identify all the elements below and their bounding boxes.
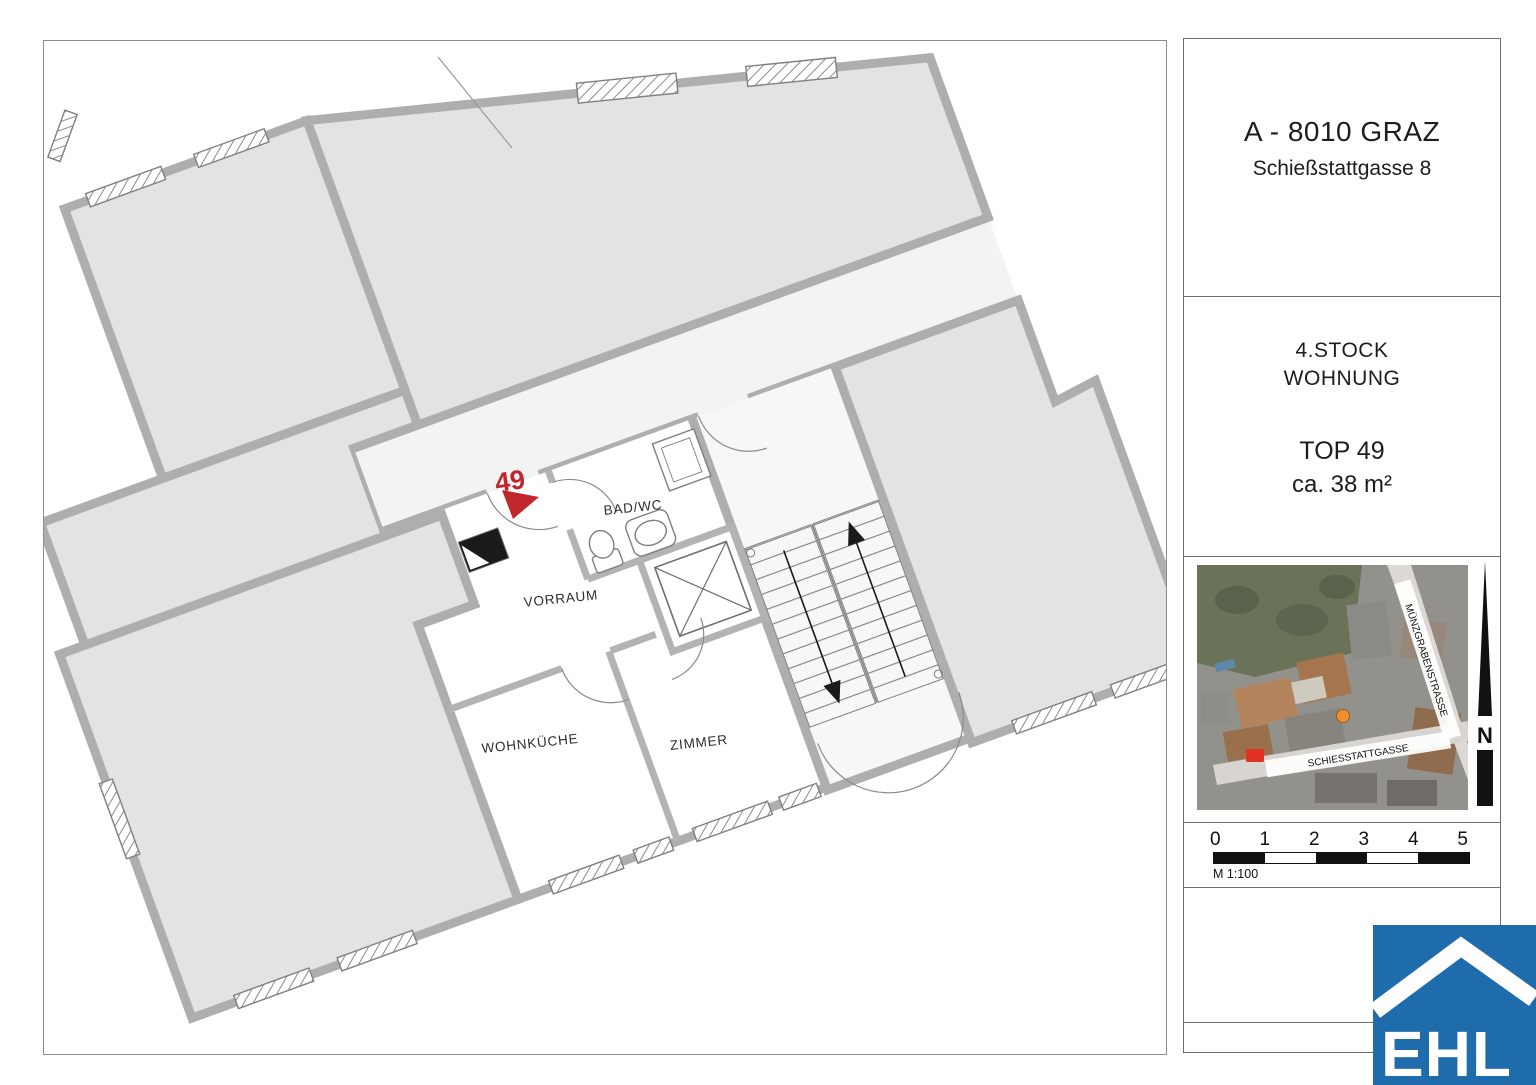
floor-line2: WOHNUNG: [1184, 367, 1500, 391]
scale-tick: 3: [1358, 829, 1369, 851]
scale-tick: 5: [1457, 829, 1468, 851]
ehl-logo: EHL: [1373, 925, 1536, 1085]
scale-note: M 1:100: [1213, 867, 1258, 881]
scale-tick: 1: [1259, 829, 1270, 851]
map-panel: MÜNZGRABENSTRASSE SCHIESSTATTGASSE N: [1184, 557, 1500, 823]
scale-panel: 0 1 2 3 4 5 M 1:100: [1184, 823, 1500, 888]
north-needle-icon: [1478, 561, 1492, 716]
address-panel: A - 8010 GRAZ Schießstattgasse 8: [1184, 39, 1500, 297]
wall-stub: [48, 110, 77, 161]
floorplan-frame: 49 BAD/WC VORRAUM WOHNKÜCHE ZIMMER: [43, 40, 1167, 1055]
floorplan-drawing: 49 BAD/WC VORRAUM WOHNKÜCHE ZIMMER: [44, 41, 1167, 1055]
north-base-icon: [1477, 750, 1493, 806]
logo-text: EHL: [1381, 1018, 1512, 1085]
area-text: ca. 38 m²: [1184, 471, 1500, 499]
scale-tick: 4: [1408, 829, 1419, 851]
scale-tick: 0: [1210, 829, 1221, 851]
scale-tick: 2: [1309, 829, 1320, 851]
map-marker-orange-icon: [1337, 710, 1350, 723]
address-street: Schießstattgasse 8: [1184, 157, 1500, 181]
scale-bar: [1213, 852, 1470, 864]
map-marker-red-icon: [1246, 749, 1264, 762]
top-number: TOP 49: [1184, 437, 1500, 466]
info-column: A - 8010 GRAZ Schießstattgasse 8 4.STOCK…: [1183, 38, 1501, 1053]
scale-ticks: 0 1 2 3 4 5: [1210, 829, 1468, 851]
unit-info-panel: 4.STOCK WOHNUNG TOP 49 ca. 38 m²: [1184, 297, 1500, 557]
floor-line1: 4.STOCK: [1184, 339, 1500, 363]
building-geometry: [44, 41, 1167, 1050]
address-city: A - 8010 GRAZ: [1184, 116, 1500, 148]
satellite-map: MÜNZGRABENSTRASSE SCHIESSTATTGASSE: [1197, 565, 1468, 810]
floorplan-document: 49 BAD/WC VORRAUM WOHNKÜCHE ZIMMER A - 8…: [0, 0, 1536, 1085]
north-indicator: N: [1472, 559, 1498, 809]
north-label: N: [1477, 723, 1493, 748]
